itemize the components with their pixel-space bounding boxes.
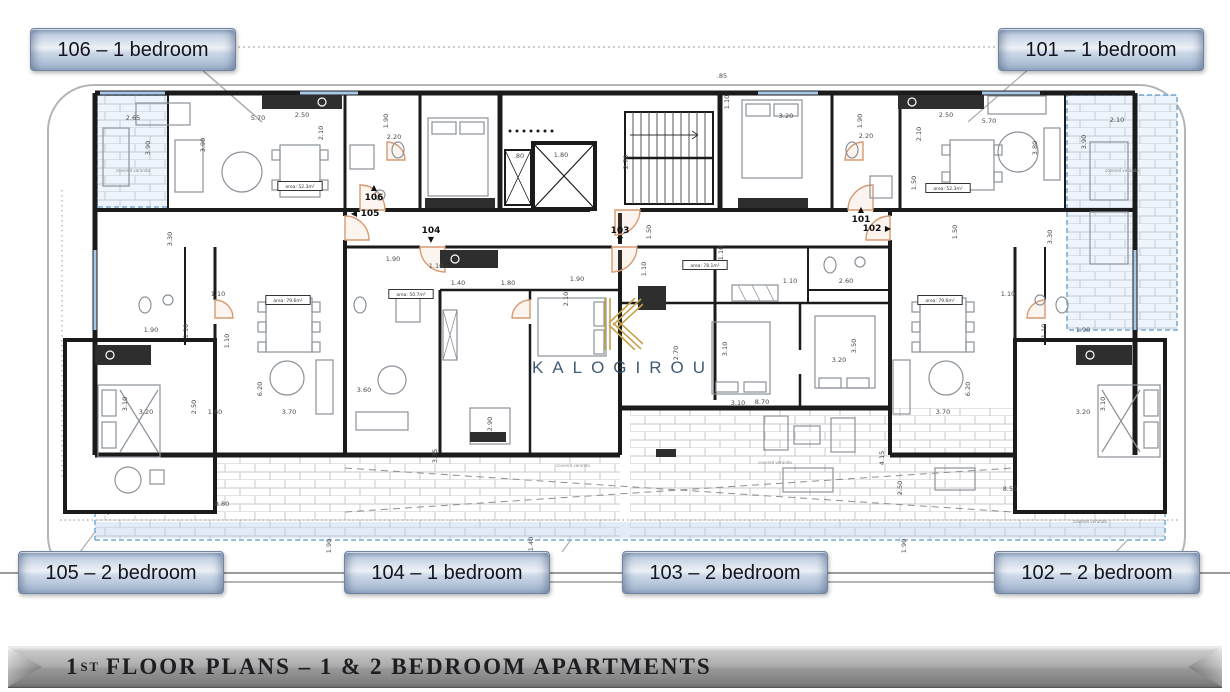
svg-text:◀: ◀ (351, 209, 358, 218)
svg-text:2.10: 2.10 (317, 126, 325, 140)
svg-text:2.65: 2.65 (126, 114, 140, 122)
svg-text:area: 78.1m²: area: 78.1m² (690, 263, 719, 269)
svg-text:3.10: 3.10 (731, 399, 745, 407)
svg-text:1.90: 1.90 (325, 539, 333, 553)
svg-text:3.10: 3.10 (721, 342, 729, 356)
svg-text:1.80: 1.80 (554, 151, 568, 159)
entrance-steps (509, 130, 554, 133)
svg-text:3.30: 3.30 (1046, 230, 1054, 244)
svg-text:2.90: 2.90 (486, 417, 494, 431)
svg-text:3.10: 3.10 (121, 397, 129, 411)
svg-text:3.20: 3.20 (832, 356, 846, 364)
svg-text:▲: ▲ (858, 205, 865, 214)
callout-unit-104[interactable]: 104 – 1 bedroom (344, 551, 550, 594)
svg-text:1.50: 1.50 (645, 225, 653, 239)
svg-text:2.10: 2.10 (562, 292, 570, 306)
door-arcs (215, 142, 1045, 318)
callout-unit-101[interactable]: 101 – 1 bedroom (998, 28, 1204, 71)
svg-text:3.50: 3.50 (850, 339, 858, 353)
svg-text:area: 50.7m²: area: 50.7m² (396, 292, 425, 298)
svg-text:105: 105 (361, 209, 380, 219)
svg-text:covered veranda: covered veranda (1073, 519, 1107, 524)
svg-text:106: 106 (365, 193, 384, 203)
svg-text:1.90: 1.90 (144, 326, 158, 334)
svg-text:5.70: 5.70 (982, 117, 996, 125)
svg-text:1.40: 1.40 (527, 537, 535, 551)
svg-text:8.70: 8.70 (755, 398, 769, 406)
svg-text:3.20: 3.20 (1076, 408, 1090, 416)
svg-text:1.90: 1.90 (856, 114, 864, 128)
svg-text:1.50: 1.50 (951, 225, 959, 239)
svg-text:1.10: 1.10 (783, 277, 797, 285)
svg-text:2.10: 2.10 (1110, 116, 1124, 124)
callout-unit-106[interactable]: 106 – 1 bedroom (30, 28, 236, 71)
svg-text:101: 101 (852, 215, 871, 225)
svg-text:area: 52.3m²: area: 52.3m² (285, 184, 314, 190)
svg-text:3.80: 3.80 (1031, 141, 1039, 155)
svg-text:3.60: 3.60 (357, 386, 371, 394)
svg-text:5.70: 5.70 (251, 114, 265, 122)
svg-text:2.50: 2.50 (939, 111, 953, 119)
svg-text:1.50: 1.50 (910, 176, 918, 190)
svg-text:1.10: 1.10 (717, 246, 725, 260)
svg-text:2.70: 2.70 (672, 346, 680, 360)
svg-text:1.90: 1.90 (382, 114, 390, 128)
svg-text:2.10: 2.10 (915, 127, 923, 141)
svg-text:3.90: 3.90 (144, 141, 152, 155)
svg-text:1.10: 1.10 (1040, 324, 1048, 338)
svg-text:2.60: 2.60 (839, 277, 853, 285)
svg-text:3.30: 3.30 (166, 232, 174, 246)
banner-title: FLOOR PLANS – 1 & 2 BEDROOM APARTMENTS (106, 654, 712, 680)
svg-text:8.50: 8.50 (1003, 485, 1017, 493)
svg-text:1.90: 1.90 (1076, 326, 1090, 334)
banner-number: 1 (66, 654, 80, 680)
svg-text:6.20: 6.20 (964, 382, 972, 396)
svg-text:3.90: 3.90 (199, 138, 207, 152)
svg-text:3.20: 3.20 (779, 112, 793, 120)
svg-text:▼: ▼ (428, 235, 435, 244)
svg-text:area: 52.3m²: area: 52.3m² (933, 186, 962, 192)
banner-ordinal: ST (81, 660, 100, 675)
svg-text:.80: .80 (514, 152, 524, 160)
svg-text:2.20: 2.20 (387, 133, 401, 141)
svg-text:1.10: 1.10 (723, 95, 731, 109)
svg-text:3.70: 3.70 (282, 408, 296, 416)
svg-text:area: 79.6m²: area: 79.6m² (925, 298, 954, 304)
svg-text:1.80: 1.80 (501, 279, 515, 287)
callout-unit-103[interactable]: 103 – 2 bedroom (622, 551, 828, 594)
svg-text:area: 79.6m²: area: 79.6m² (273, 298, 302, 304)
svg-text:1.10: 1.10 (640, 262, 648, 276)
svg-text:2.50: 2.50 (190, 400, 198, 414)
svg-text:1.90: 1.90 (386, 255, 400, 263)
svg-text:▶: ▶ (885, 224, 892, 233)
svg-text:1.10: 1.10 (223, 334, 231, 348)
svg-text:3.20: 3.20 (139, 408, 153, 416)
svg-text:1.10: 1.10 (211, 290, 225, 298)
svg-text:1.90: 1.90 (900, 539, 908, 553)
svg-text:2.50: 2.50 (896, 481, 904, 495)
svg-text:102: 102 (863, 224, 882, 234)
callout-unit-102[interactable]: 102 – 2 bedroom (994, 551, 1200, 594)
svg-text:3.10: 3.10 (1099, 397, 1107, 411)
title-banner: 1STFLOOR PLANS – 1 & 2 BEDROOM APARTMENT… (8, 646, 1222, 688)
svg-text:3.90: 3.90 (1080, 135, 1088, 149)
svg-text:1.10: 1.10 (1001, 290, 1015, 298)
svg-text:2.50: 2.50 (295, 111, 309, 119)
stairs-icon (625, 112, 713, 204)
svg-text:6.20: 6.20 (256, 382, 264, 396)
svg-text:covered veranda: covered veranda (116, 168, 150, 173)
svg-text:1.60: 1.60 (208, 408, 222, 416)
svg-text:covered veranda: covered veranda (1105, 168, 1139, 173)
floor-plan-page: 2.655.702.502.101.902.203.903.90.851.10.… (0, 0, 1230, 692)
svg-text:2.70: 2.70 (622, 155, 630, 169)
svg-text:1.10: 1.10 (182, 324, 190, 338)
svg-text:2.20: 2.20 (859, 132, 873, 140)
svg-text:1.90: 1.90 (570, 275, 584, 283)
svg-text:8.80: 8.80 (215, 500, 229, 508)
svg-text:1.10: 1.10 (429, 262, 443, 270)
svg-text:1.40: 1.40 (451, 279, 465, 287)
svg-text:4.15: 4.15 (878, 451, 886, 465)
svg-text:3.35: 3.35 (431, 449, 439, 463)
walls (95, 93, 1135, 455)
svg-text:▼: ▼ (617, 235, 624, 244)
svg-text:.85: .85 (717, 72, 727, 80)
svg-text:▲: ▲ (371, 183, 378, 192)
svg-text:covered veranda: covered veranda (758, 460, 792, 465)
svg-text:covered veranda: covered veranda (556, 463, 590, 468)
callout-unit-105[interactable]: 105 – 2 bedroom (18, 551, 224, 594)
svg-text:3.70: 3.70 (936, 408, 950, 416)
